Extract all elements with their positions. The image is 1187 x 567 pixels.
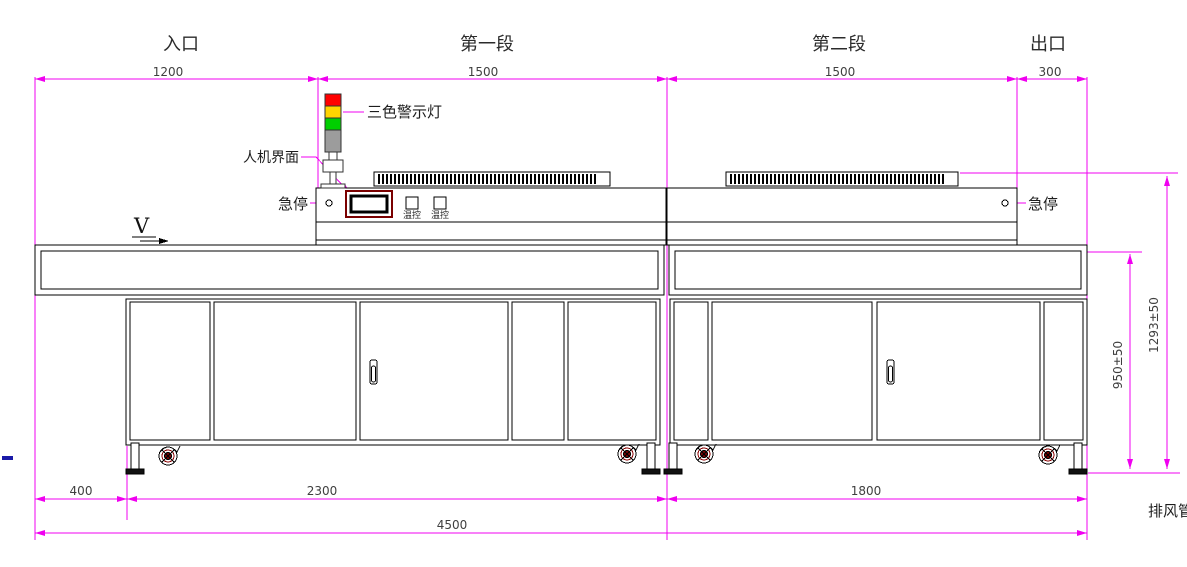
door-handle-icon [887, 360, 894, 384]
tower-green-segment [325, 118, 341, 130]
door-panel [130, 302, 210, 440]
door-panel [360, 302, 508, 440]
leveling-foot-icon [642, 443, 660, 474]
drawing-canvas: 入口 第一段 第二段 出口 1200 1500 1500 300 400 230… [0, 0, 1187, 567]
margin-mark [2, 456, 13, 460]
dim-total-length: 4500 [437, 518, 468, 532]
door-panel [568, 302, 656, 440]
door-panel [512, 302, 564, 440]
callout-hmi: 人机界面 [243, 150, 299, 166]
flow-direction-label: V [133, 214, 150, 238]
base-cabinet-2 [670, 299, 1087, 445]
section-label-exit: 出口 [1030, 34, 1066, 55]
door-panel [1044, 302, 1083, 440]
conveyor-table-2 [669, 245, 1087, 295]
tower-yellow-segment [325, 106, 341, 118]
estop-button-right [1002, 200, 1008, 206]
flow-arrow-icon [132, 237, 169, 244]
caster-icon [1039, 445, 1060, 464]
dim-section2-width: 1500 [825, 65, 856, 79]
dim-exit-width: 300 [1039, 65, 1062, 79]
dim-entrance-width: 1200 [153, 65, 184, 79]
machine-layer [35, 94, 1087, 474]
door-panel [674, 302, 708, 440]
callout-temp-controller-1: 温控 [403, 209, 421, 221]
dim-section1-width: 1500 [468, 65, 499, 79]
leveling-foot-icon [1069, 443, 1087, 474]
door-panel [214, 302, 356, 440]
exhaust-vent-strip-2 [726, 172, 958, 186]
engineering-drawing: 入口 第一段 第二段 出口 1200 1500 1500 300 400 230… [0, 0, 1187, 567]
exhaust-vent-strip-1 [374, 172, 610, 186]
callout-estop-right: 急停 [1028, 195, 1058, 213]
oven-body-2 [667, 188, 1017, 245]
temp-controller-2 [434, 197, 446, 209]
section-label-entrance: 入口 [163, 34, 199, 55]
conveyor-table-1 [35, 245, 664, 295]
dim-front-offset: 400 [70, 484, 93, 498]
dim-belt-height: 950±50 [1111, 341, 1125, 389]
hmi-screen [346, 191, 392, 217]
door-panel [712, 302, 872, 440]
dim-overall-height: 1293±50 [1147, 297, 1161, 353]
leveling-foot-icon [126, 443, 144, 474]
dim-unit1-base: 2300 [307, 484, 338, 498]
section-label-section2: 第二段 [812, 34, 866, 55]
caster-icon [618, 444, 639, 463]
callout-temp-controller-2: 温控 [431, 209, 449, 221]
temp-controller-1 [406, 197, 418, 209]
caster-icon [695, 444, 716, 463]
door-handle-icon [370, 360, 377, 384]
dim-unit2-base: 1800 [851, 484, 882, 498]
caster-icon [159, 446, 180, 465]
tower-light-icon [321, 94, 345, 188]
tower-red-segment [325, 94, 341, 106]
section-label-section1: 第一段 [460, 34, 514, 55]
callout-tower-light: 三色警示灯 [367, 103, 442, 121]
base-cabinet-1 [126, 299, 660, 445]
estop-button-left [326, 200, 332, 206]
callout-estop-left: 急停 [278, 195, 308, 213]
exhaust-duct-label: 排风管 [1148, 502, 1187, 520]
door-panel [877, 302, 1040, 440]
tower-base-segment [325, 130, 341, 152]
